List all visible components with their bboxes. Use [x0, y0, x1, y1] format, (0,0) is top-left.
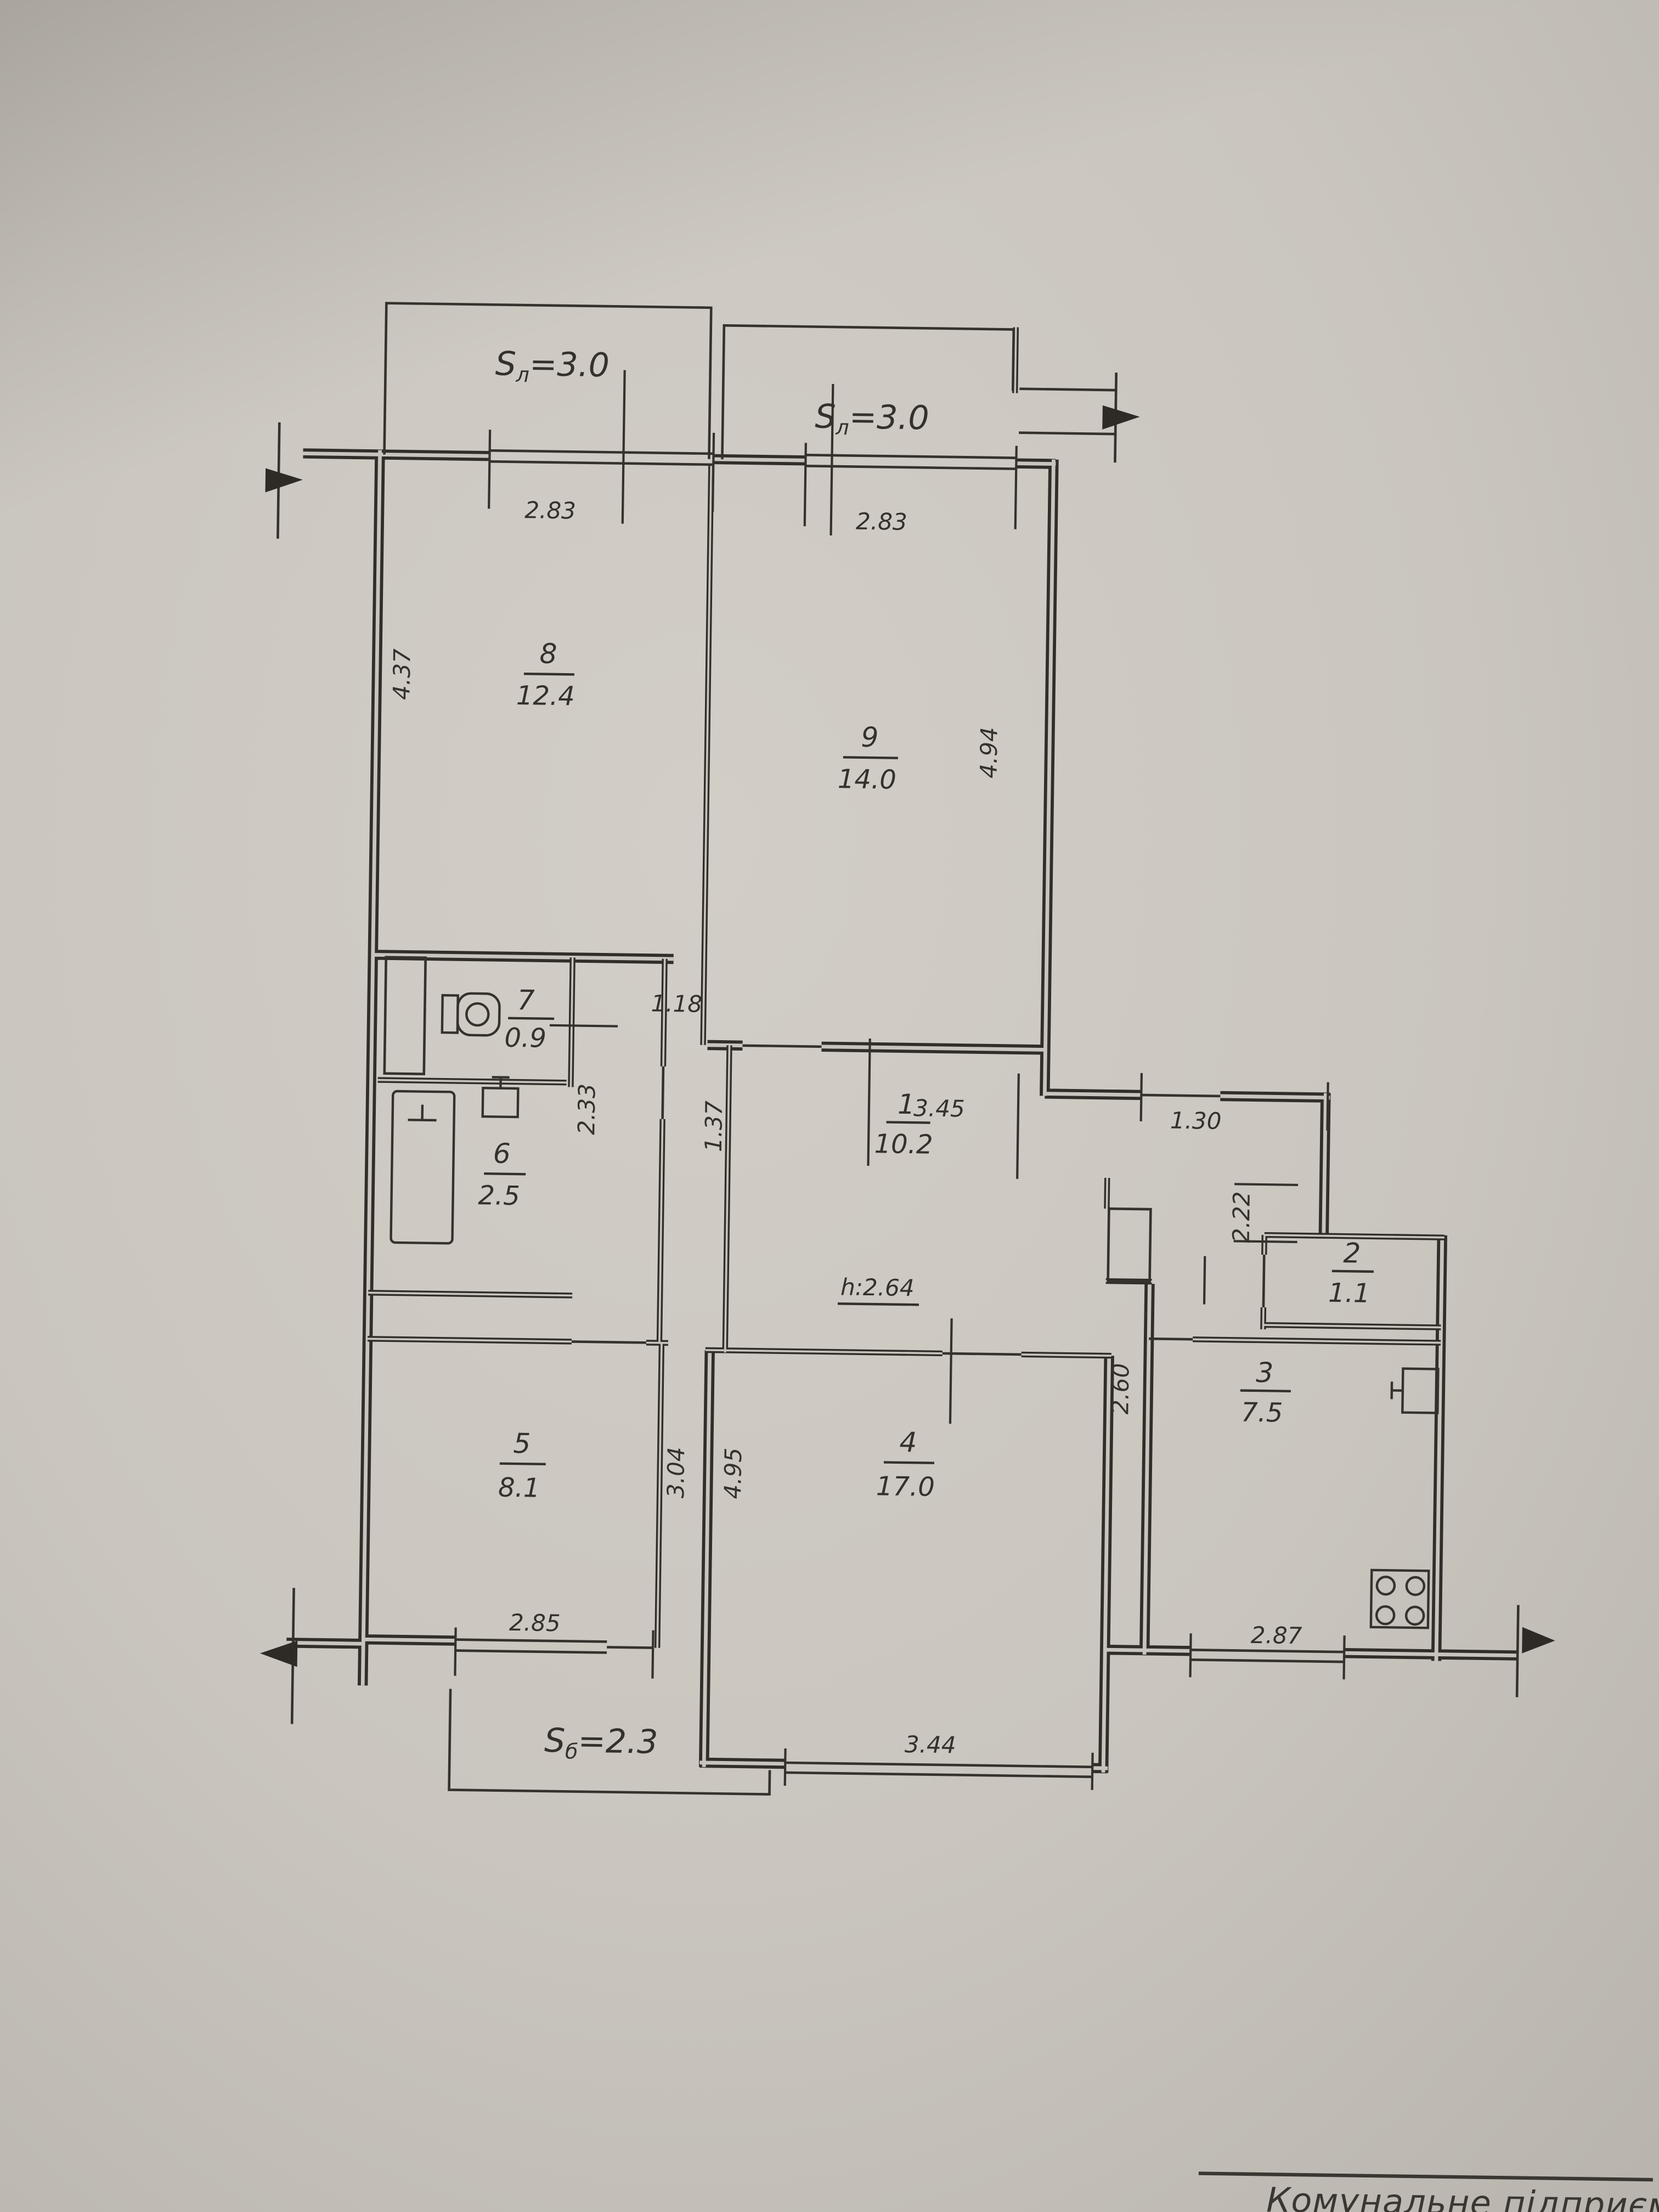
paper-shading — [0, 0, 1659, 2212]
dim-room5-window: 2.85 — [509, 1609, 561, 1637]
dim-room4-window: 3.44 — [905, 1731, 956, 1758]
dim-room4-height: 4.95 — [719, 1448, 747, 1499]
dim-hall-left-height: 1.37 — [700, 1101, 727, 1152]
room-3-number: 3 — [1256, 1357, 1274, 1389]
room-7-area: 0.9 — [504, 1023, 546, 1054]
dim-window-left: 2.83 — [524, 496, 576, 524]
room-1-area: 10.2 — [874, 1128, 933, 1160]
dim-nook: 1.18 — [651, 990, 702, 1017]
dim-hall-right: 1.30 — [1170, 1107, 1222, 1135]
dim-window-right: 2.83 — [856, 508, 907, 535]
dim-kitchen-left-height: 2.60 — [1107, 1363, 1134, 1414]
room-4-number: 4 — [899, 1426, 917, 1458]
room-8-area: 12.4 — [516, 680, 575, 712]
balcony-bottom-label: Sб=2.3 — [544, 1722, 658, 1765]
floor-plan-photo: Sл=3.0 Sл=3.0 Sб=2.3 8 12.4 9 14.0 7 0.9… — [0, 0, 1659, 2212]
room-7-number: 7 — [517, 984, 535, 1016]
balcony-top-right-label: Sл=3.0 — [815, 398, 929, 441]
dim-room5-height: 3.04 — [662, 1447, 690, 1498]
room-5-number: 5 — [513, 1427, 531, 1459]
balcony-top-left-label: Sл=3.0 — [495, 345, 610, 388]
stamp-text: Комунальне підприємс — [1266, 2180, 1659, 2212]
dim-room9-height: 4.94 — [975, 727, 1002, 778]
height-note-text: h:2.64 — [840, 1273, 915, 1301]
room-6-number: 6 — [493, 1137, 511, 1169]
dim-closet-height: 2.33 — [573, 1084, 600, 1135]
room-9-number: 9 — [861, 721, 879, 753]
dim-kitchen-bottom: 2.87 — [1251, 1622, 1302, 1649]
room-6-area: 2.5 — [478, 1180, 520, 1211]
room-3-area: 7.5 — [1241, 1397, 1283, 1429]
dim-hall-top: 3.45 — [913, 1094, 965, 1122]
height-note: h:2.64 — [838, 1273, 919, 1305]
room-9-area: 14.0 — [837, 764, 896, 795]
dim-corridor-height: 2.22 — [1228, 1191, 1255, 1243]
room-5-area: 8.1 — [498, 1472, 540, 1504]
room-2-area: 1.1 — [1328, 1278, 1370, 1309]
room-1-number: 1 — [898, 1088, 916, 1120]
room-4-area: 17.0 — [876, 1471, 935, 1502]
room-8-number: 8 — [539, 638, 557, 670]
dim-room8-height: 4.37 — [388, 648, 415, 700]
room-2-number: 2 — [1343, 1237, 1361, 1269]
